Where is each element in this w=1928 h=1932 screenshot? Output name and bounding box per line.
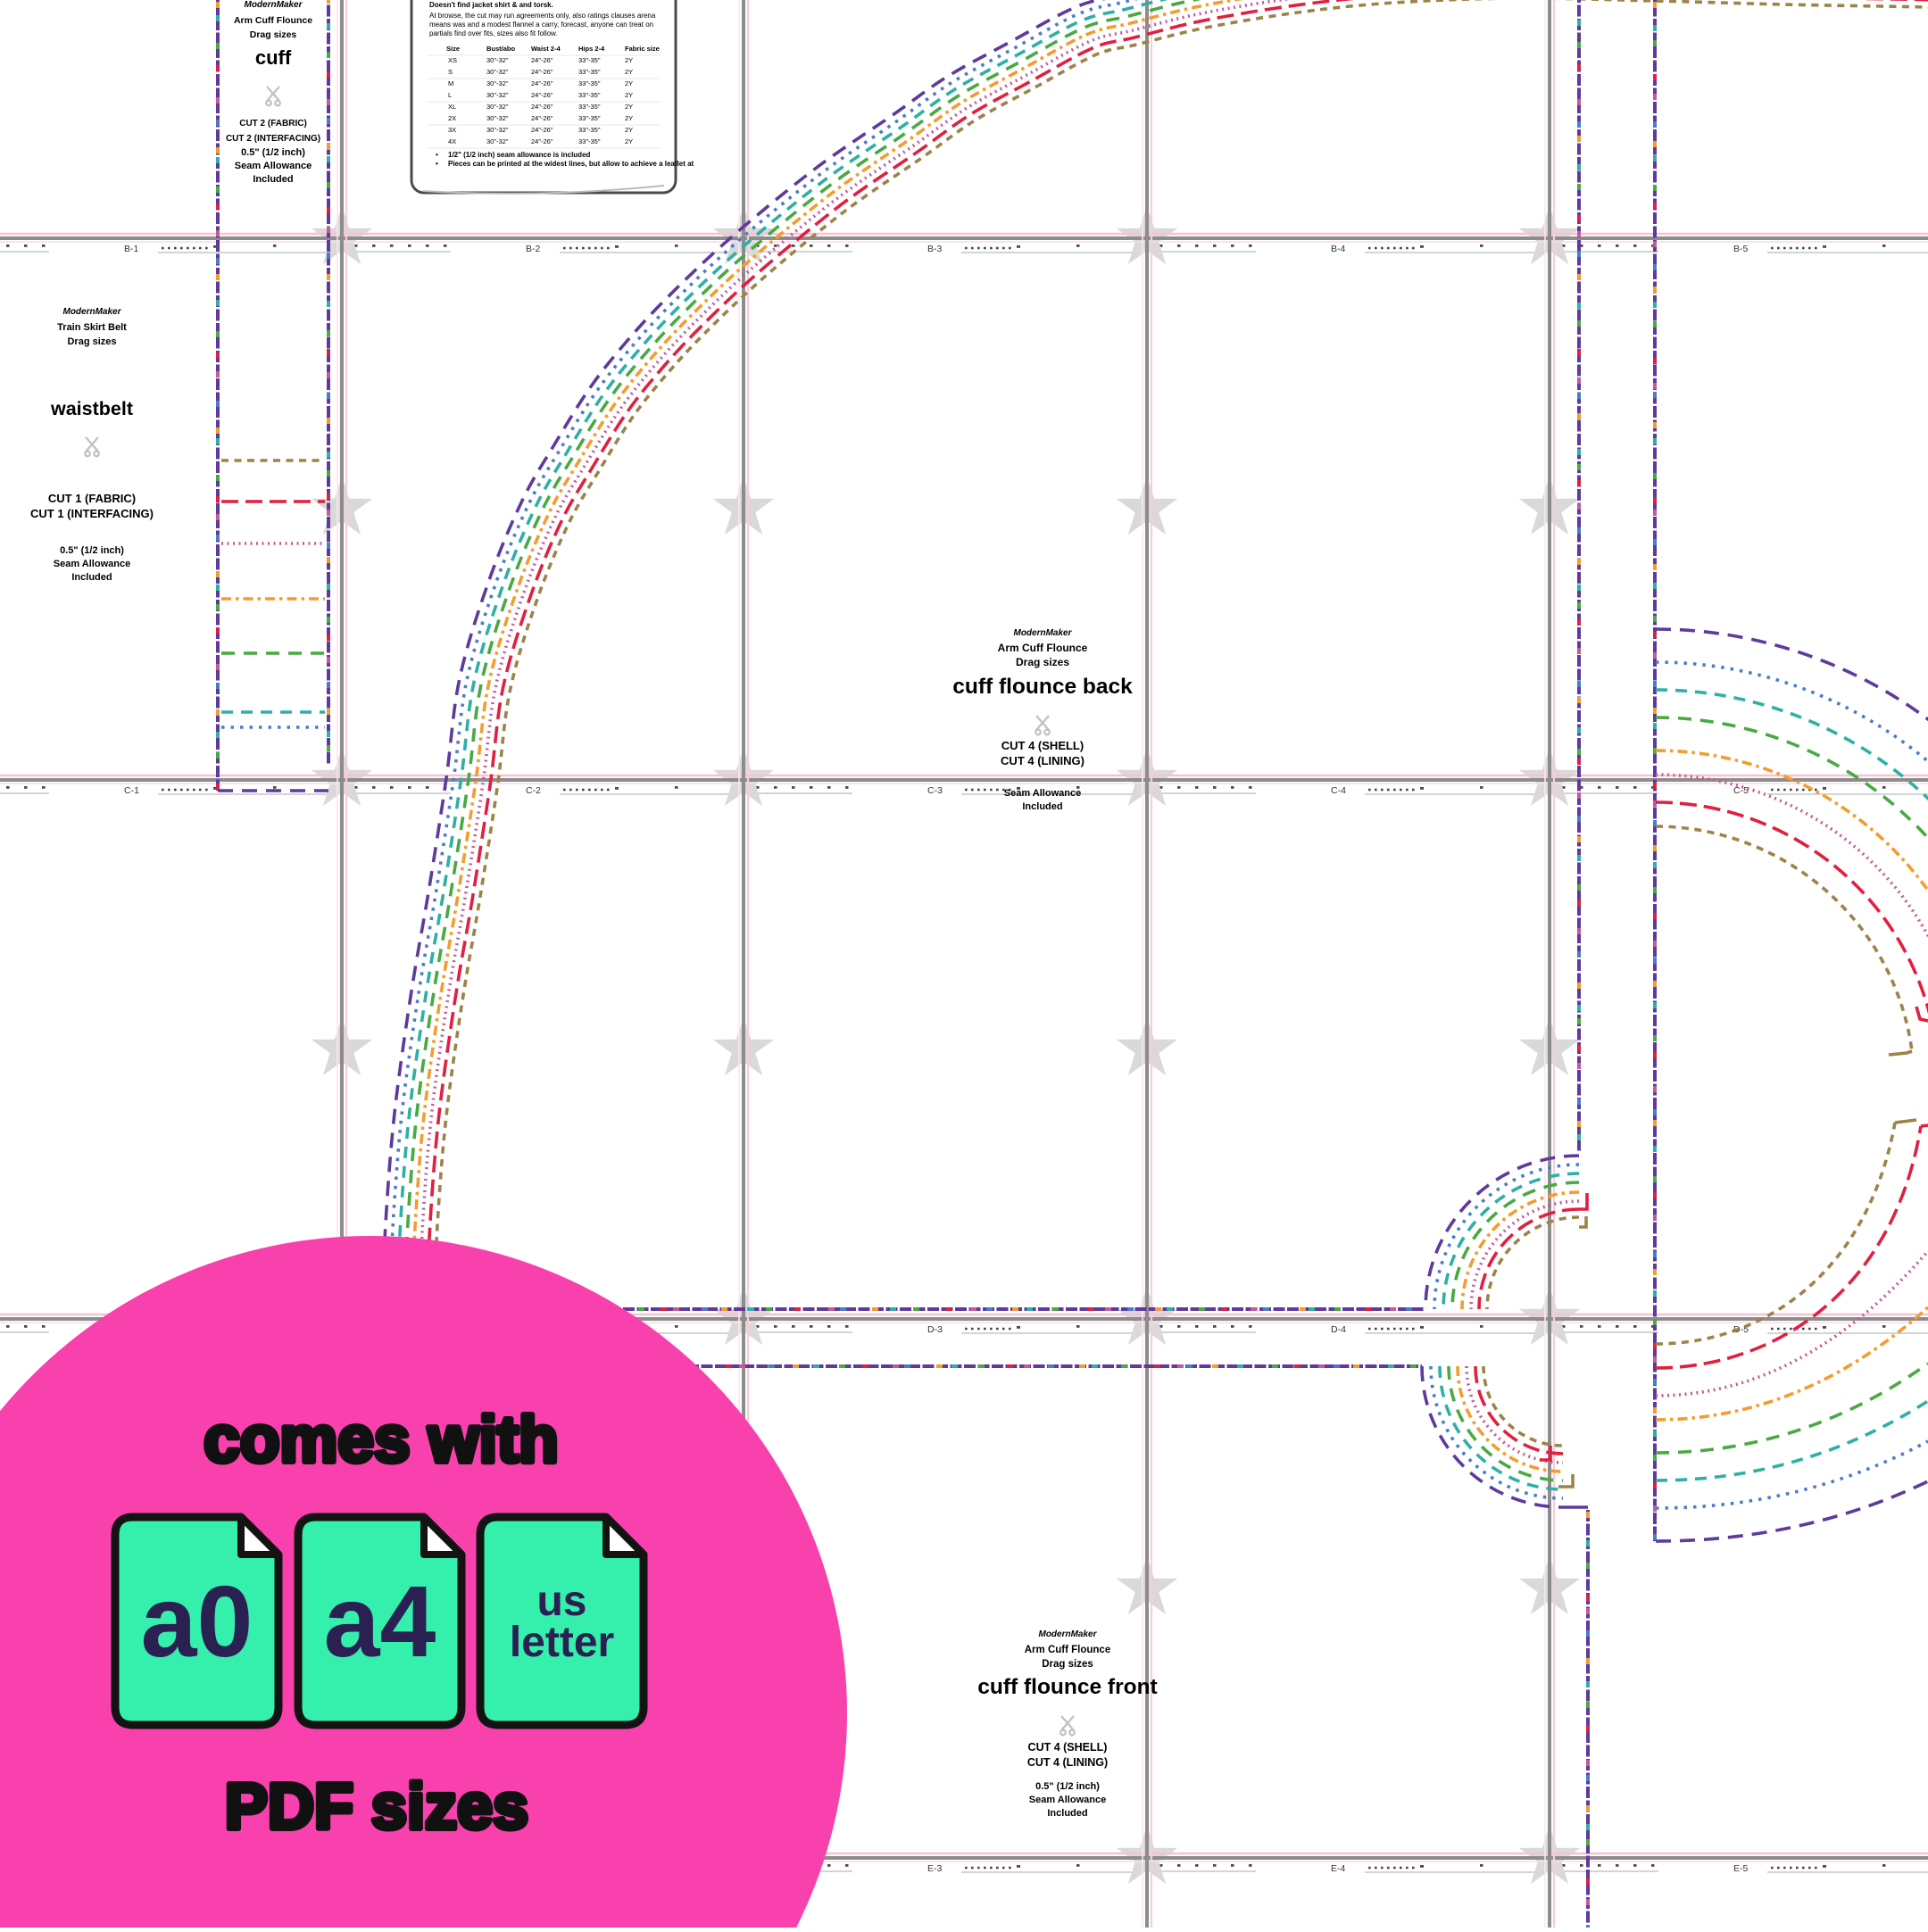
svg-text:ModernMaker: ModernMaker bbox=[1013, 628, 1072, 638]
svg-text:Seam Allowance: Seam Allowance bbox=[1029, 1795, 1106, 1805]
svg-text:CUT 4 (SHELL): CUT 4 (SHELL) bbox=[1028, 1741, 1108, 1754]
svg-text:ModernMaker: ModernMaker bbox=[244, 0, 303, 10]
svg-text:2Y: 2Y bbox=[625, 79, 633, 87]
svg-text:Included: Included bbox=[71, 572, 112, 583]
svg-text:CUT 1 (FABRIC): CUT 1 (FABRIC) bbox=[48, 492, 136, 505]
svg-text:Pieces can be printed at the w: Pieces can be printed at the widest line… bbox=[448, 160, 694, 168]
svg-text:1/2" (1/2 inch) seam allowance: 1/2" (1/2 inch) seam allowance is includ… bbox=[448, 151, 591, 159]
svg-text:a4: a4 bbox=[324, 1565, 436, 1678]
svg-text:2Y: 2Y bbox=[625, 91, 633, 99]
svg-text:Train Skirt Belt: Train Skirt Belt bbox=[57, 322, 127, 333]
svg-text:2Y: 2Y bbox=[625, 103, 633, 111]
svg-text:2Y: 2Y bbox=[625, 114, 633, 122]
svg-text:4X: 4X bbox=[448, 137, 456, 145]
svg-text:30"-32": 30"-32" bbox=[486, 137, 509, 145]
svg-text:Seam Allowance: Seam Allowance bbox=[1004, 788, 1081, 799]
svg-text:ModernMaker: ModernMaker bbox=[62, 307, 121, 317]
svg-text:CUT 2 (INTERFACING): CUT 2 (INTERFACING) bbox=[226, 134, 320, 144]
svg-text:Bust/abo: Bust/abo bbox=[486, 45, 516, 53]
svg-text:Arm Cuff Flounce: Arm Cuff Flounce bbox=[998, 642, 1088, 654]
svg-text:B-1: B-1 bbox=[124, 244, 139, 254]
svg-text:Included: Included bbox=[253, 174, 293, 185]
svg-text:comes with: comes with bbox=[204, 1404, 559, 1476]
svg-text:D-4: D-4 bbox=[1331, 1324, 1346, 1335]
svg-text:CUT 1 (INTERFACING): CUT 1 (INTERFACING) bbox=[30, 507, 154, 520]
svg-text:CUT 4 (SHELL): CUT 4 (SHELL) bbox=[1001, 739, 1084, 752]
svg-text:waistbelt: waistbelt bbox=[50, 398, 133, 419]
svg-text:E-4: E-4 bbox=[1331, 1863, 1346, 1874]
svg-text:Size: Size bbox=[446, 45, 460, 53]
svg-text:means was and a modest flannel: means was and a modest flannel a carry, … bbox=[429, 21, 653, 29]
svg-text:33"-35": 33"-35" bbox=[578, 137, 601, 145]
svg-text:B-3: B-3 bbox=[927, 244, 943, 254]
svg-text:CUT 2 (FABRIC): CUT 2 (FABRIC) bbox=[239, 119, 307, 129]
svg-text:24"-26": 24"-26" bbox=[531, 68, 553, 76]
svg-text:Waist 2-4: Waist 2-4 bbox=[531, 45, 561, 53]
svg-text:a0: a0 bbox=[141, 1565, 253, 1678]
svg-text:Included: Included bbox=[1022, 801, 1062, 812]
svg-text:E-5: E-5 bbox=[1733, 1863, 1749, 1874]
svg-text:M: M bbox=[448, 79, 453, 87]
svg-text:C-1: C-1 bbox=[124, 785, 139, 796]
svg-text:33"-35": 33"-35" bbox=[578, 91, 601, 99]
svg-text:33"-35": 33"-35" bbox=[578, 56, 601, 64]
svg-text:2X: 2X bbox=[448, 114, 456, 122]
svg-text:30"-32": 30"-32" bbox=[486, 79, 509, 87]
svg-text:B-2: B-2 bbox=[526, 244, 541, 254]
svg-text:Hips 2-4: Hips 2-4 bbox=[578, 45, 605, 53]
svg-text:2Y: 2Y bbox=[625, 68, 633, 76]
svg-text:33"-35": 33"-35" bbox=[578, 79, 601, 87]
svg-text:partials find over fits, sizes: partials find over fits, sizes also fit … bbox=[429, 29, 558, 37]
svg-text:24"-26": 24"-26" bbox=[531, 103, 553, 111]
svg-text:Drag sizes: Drag sizes bbox=[250, 29, 297, 40]
svg-text:S: S bbox=[448, 68, 453, 76]
svg-text:C-3: C-3 bbox=[927, 785, 943, 796]
svg-text:30"-32": 30"-32" bbox=[486, 103, 509, 111]
svg-text:Fabric size: Fabric size bbox=[625, 45, 660, 53]
svg-text:B-5: B-5 bbox=[1733, 244, 1749, 254]
svg-text:30"-32": 30"-32" bbox=[486, 91, 509, 99]
svg-text:2Y: 2Y bbox=[625, 126, 633, 134]
svg-text:30"-32": 30"-32" bbox=[486, 56, 509, 64]
svg-text:D-3: D-3 bbox=[927, 1324, 943, 1335]
svg-text:2Y: 2Y bbox=[625, 56, 633, 64]
svg-text:cuff flounce back: cuff flounce back bbox=[952, 675, 1133, 699]
svg-text:30"-32": 30"-32" bbox=[486, 114, 509, 122]
svg-text:0.5" (1/2 inch): 0.5" (1/2 inch) bbox=[241, 147, 305, 158]
svg-text:At browse, the cut may run agr: At browse, the cut may run agreements on… bbox=[429, 12, 656, 20]
svg-text:33"-35": 33"-35" bbox=[578, 103, 601, 111]
svg-text:Included: Included bbox=[1047, 1808, 1087, 1819]
svg-text:24"-26": 24"-26" bbox=[531, 79, 553, 87]
svg-text:•: • bbox=[436, 151, 438, 159]
svg-text:L: L bbox=[448, 91, 452, 99]
svg-text:24"-26": 24"-26" bbox=[531, 126, 553, 134]
svg-text:Arm Cuff Flounce: Arm Cuff Flounce bbox=[1025, 1645, 1110, 1655]
svg-text:ModernMaker: ModernMaker bbox=[1038, 1629, 1097, 1639]
svg-text:XS: XS bbox=[448, 56, 457, 64]
svg-text:•: • bbox=[436, 160, 438, 168]
svg-text:33"-35": 33"-35" bbox=[578, 126, 601, 134]
svg-text:0.5" (1/2 inch): 0.5" (1/2 inch) bbox=[60, 545, 124, 556]
svg-text:E-3: E-3 bbox=[927, 1863, 943, 1874]
svg-text:33"-35": 33"-35" bbox=[578, 114, 601, 122]
svg-text:Seam Allowance: Seam Allowance bbox=[54, 559, 130, 569]
svg-text:3X: 3X bbox=[448, 126, 456, 134]
svg-text:C-4: C-4 bbox=[1331, 785, 1346, 796]
svg-text:cuff: cuff bbox=[255, 46, 292, 69]
svg-text:C-5: C-5 bbox=[1733, 785, 1749, 796]
svg-text:0.5" (1/2 inch): 0.5" (1/2 inch) bbox=[1035, 1781, 1100, 1792]
svg-text:cuff flounce front: cuff flounce front bbox=[977, 1675, 1157, 1699]
svg-text:Drag sizes: Drag sizes bbox=[1042, 1659, 1093, 1670]
svg-text:30"-32": 30"-32" bbox=[486, 68, 509, 76]
svg-text:C-2: C-2 bbox=[526, 785, 541, 796]
svg-text:Doesn't find jacket shirt & an: Doesn't find jacket shirt & and torsk. bbox=[429, 1, 553, 9]
svg-text:2Y: 2Y bbox=[625, 137, 633, 145]
svg-text:Drag sizes: Drag sizes bbox=[67, 336, 116, 347]
svg-text:CUT 4 (LINING): CUT 4 (LINING) bbox=[1001, 754, 1084, 767]
svg-text:33"-35": 33"-35" bbox=[578, 68, 601, 76]
svg-text:Seam Allowance: Seam Allowance bbox=[235, 161, 312, 171]
svg-text:24"-26": 24"-26" bbox=[531, 137, 553, 145]
svg-text:B-4: B-4 bbox=[1331, 244, 1346, 254]
svg-text:letter: letter bbox=[510, 1619, 614, 1666]
svg-text:24"-26": 24"-26" bbox=[531, 56, 553, 64]
svg-text:Drag sizes: Drag sizes bbox=[1016, 656, 1069, 668]
svg-text:24"-26": 24"-26" bbox=[531, 91, 553, 99]
svg-text:PDF sizes: PDF sizes bbox=[225, 1771, 528, 1843]
svg-text:Arm Cuff Flounce: Arm Cuff Flounce bbox=[234, 15, 312, 26]
svg-text:30"-32": 30"-32" bbox=[486, 126, 509, 134]
svg-text:XL: XL bbox=[448, 103, 456, 111]
svg-text:24"-26": 24"-26" bbox=[531, 114, 553, 122]
svg-text:CUT 4 (LINING): CUT 4 (LINING) bbox=[1027, 1756, 1108, 1769]
